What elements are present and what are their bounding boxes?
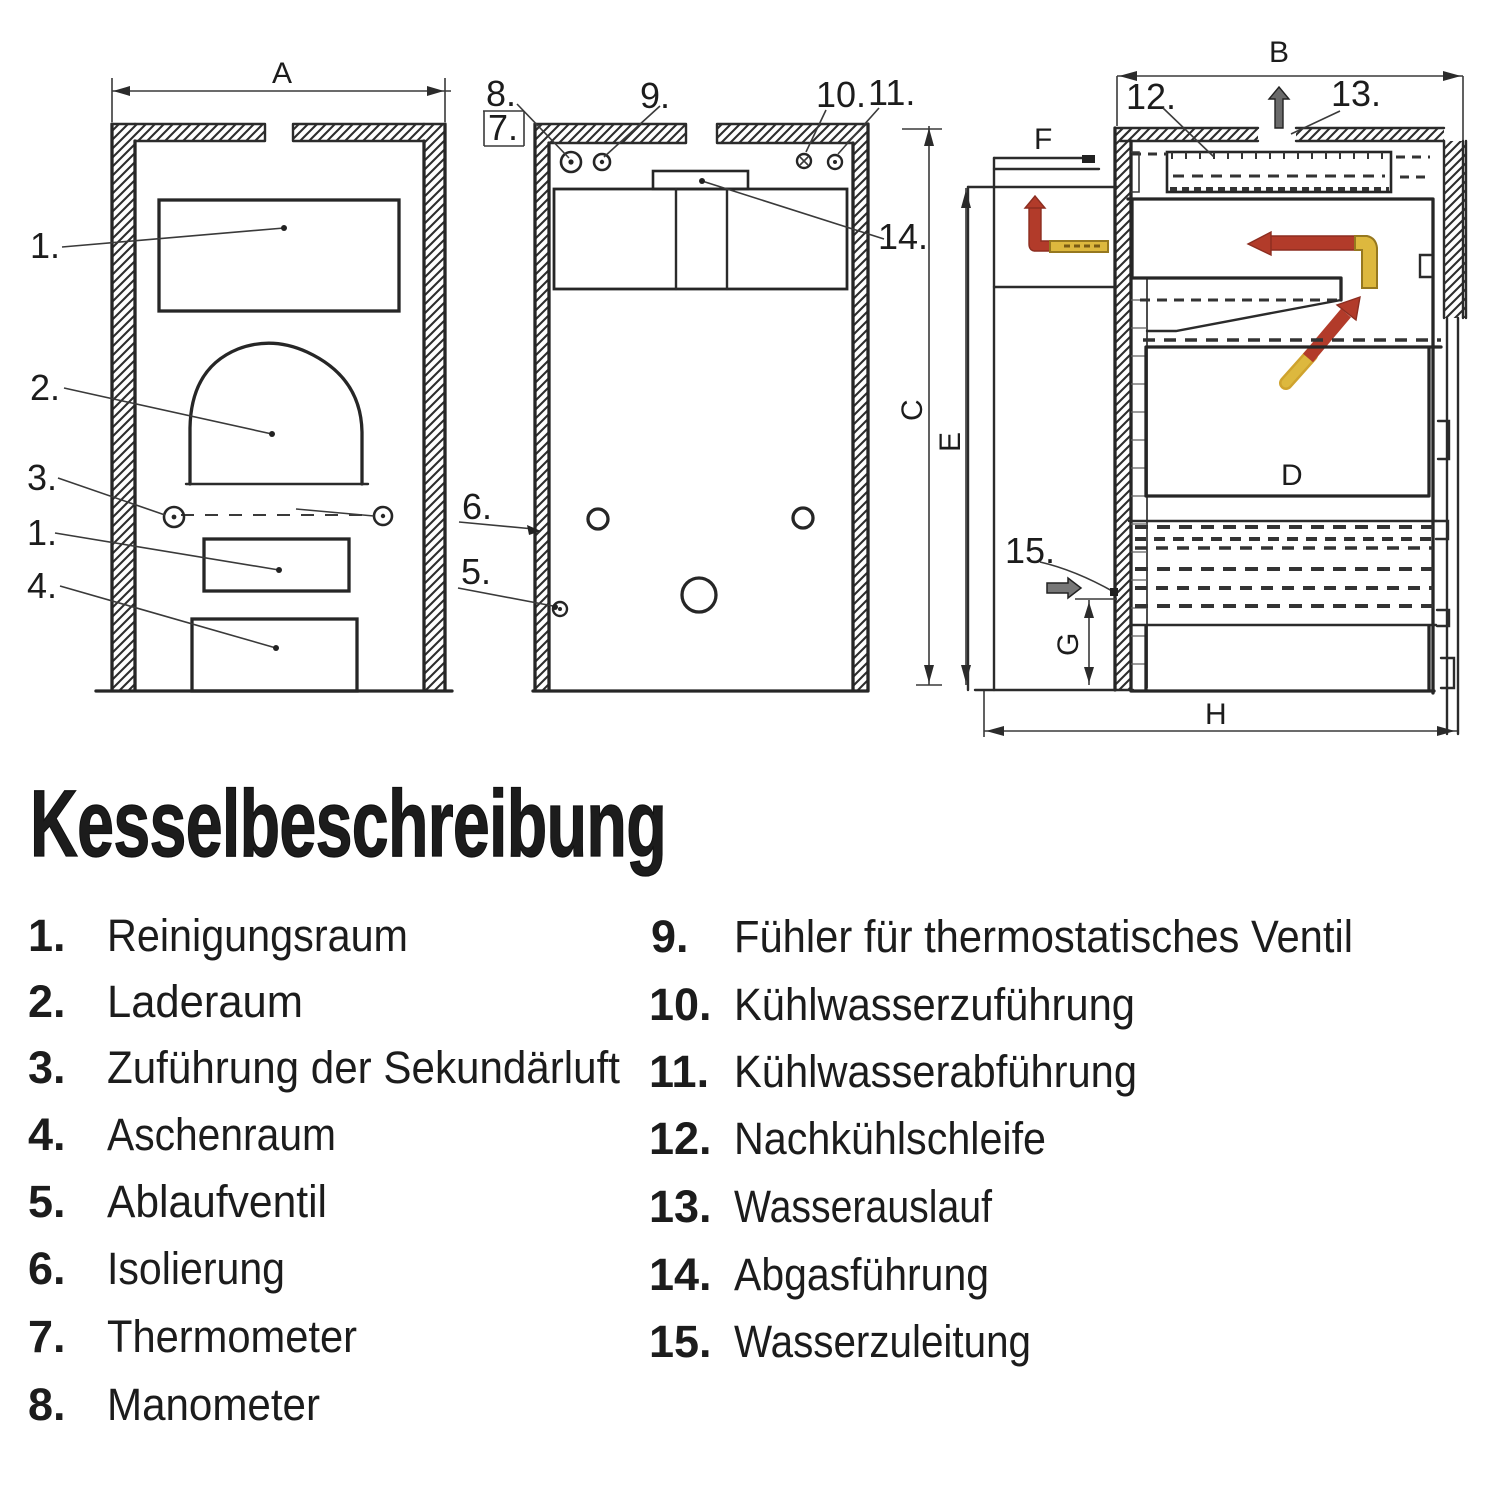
svg-text:12.: 12.	[649, 1113, 712, 1164]
svg-text:10.: 10.	[816, 74, 866, 115]
svg-text:Ablaufventil: Ablaufventil	[107, 1176, 327, 1227]
svg-text:Zuführung der Sekundärluft: Zuführung der Sekundärluft	[107, 1042, 620, 1093]
svg-text:Nachkühlschleife: Nachkühlschleife	[734, 1113, 1046, 1164]
svg-text:8.: 8.	[28, 1379, 66, 1430]
svg-text:C: C	[896, 399, 929, 421]
svg-text:1.: 1.	[30, 225, 60, 266]
svg-text:14.: 14.	[649, 1249, 712, 1300]
svg-text:5.: 5.	[28, 1176, 66, 1227]
svg-text:10.: 10.	[649, 979, 712, 1030]
svg-text:Manometer: Manometer	[107, 1379, 320, 1430]
svg-text:7.: 7.	[488, 107, 518, 148]
svg-text:Fühler für thermostatisches Ve: Fühler für thermostatisches Ventil	[734, 911, 1353, 962]
svg-text:Kühlwasserabführung: Kühlwasserabführung	[734, 1046, 1137, 1097]
svg-text:Kesselbeschreibung: Kesselbeschreibung	[30, 771, 666, 877]
svg-text:2.: 2.	[30, 367, 60, 408]
svg-text:1.: 1.	[27, 512, 57, 553]
svg-text:15.: 15.	[1005, 530, 1055, 571]
svg-text:Reinigungsraum: Reinigungsraum	[107, 910, 408, 961]
svg-text:15.: 15.	[649, 1316, 712, 1367]
svg-text:B: B	[1269, 36, 1289, 69]
svg-text:13.: 13.	[1331, 73, 1381, 114]
svg-text:11.: 11.	[868, 72, 915, 113]
svg-text:F: F	[1034, 123, 1052, 156]
svg-text:1.: 1.	[28, 910, 66, 961]
svg-text:A: A	[272, 57, 292, 90]
svg-text:4.: 4.	[27, 565, 57, 606]
svg-text:Thermometer: Thermometer	[107, 1311, 357, 1362]
svg-text:Laderaum: Laderaum	[107, 976, 303, 1027]
svg-text:2.: 2.	[28, 976, 66, 1027]
svg-text:Aschenraum: Aschenraum	[107, 1109, 336, 1160]
svg-text:Isolierung: Isolierung	[107, 1243, 285, 1294]
svg-text:14.: 14.	[878, 216, 928, 257]
svg-text:Wasserzuleitung: Wasserzuleitung	[734, 1316, 1031, 1367]
svg-text:6.: 6.	[28, 1243, 66, 1294]
svg-text:H: H	[1205, 698, 1227, 731]
svg-text:5.: 5.	[461, 551, 491, 592]
svg-text:6.: 6.	[462, 486, 492, 527]
svg-text:D: D	[1281, 459, 1303, 492]
svg-text:7.: 7.	[28, 1311, 66, 1362]
svg-text:Abgasführung: Abgasführung	[734, 1249, 989, 1300]
svg-text:3.: 3.	[28, 1042, 66, 1093]
svg-text:11.: 11.	[649, 1046, 709, 1097]
svg-text:G: G	[1052, 633, 1085, 656]
svg-text:E: E	[934, 432, 967, 452]
svg-text:3.: 3.	[27, 457, 57, 498]
svg-text:Wasserauslauf: Wasserauslauf	[734, 1181, 992, 1232]
svg-text:Kühlwasserzuführung: Kühlwasserzuführung	[734, 979, 1135, 1030]
svg-text:9.: 9.	[651, 911, 689, 962]
svg-text:12.: 12.	[1126, 76, 1176, 117]
svg-text:4.: 4.	[28, 1109, 66, 1160]
svg-text:13.: 13.	[649, 1181, 712, 1232]
